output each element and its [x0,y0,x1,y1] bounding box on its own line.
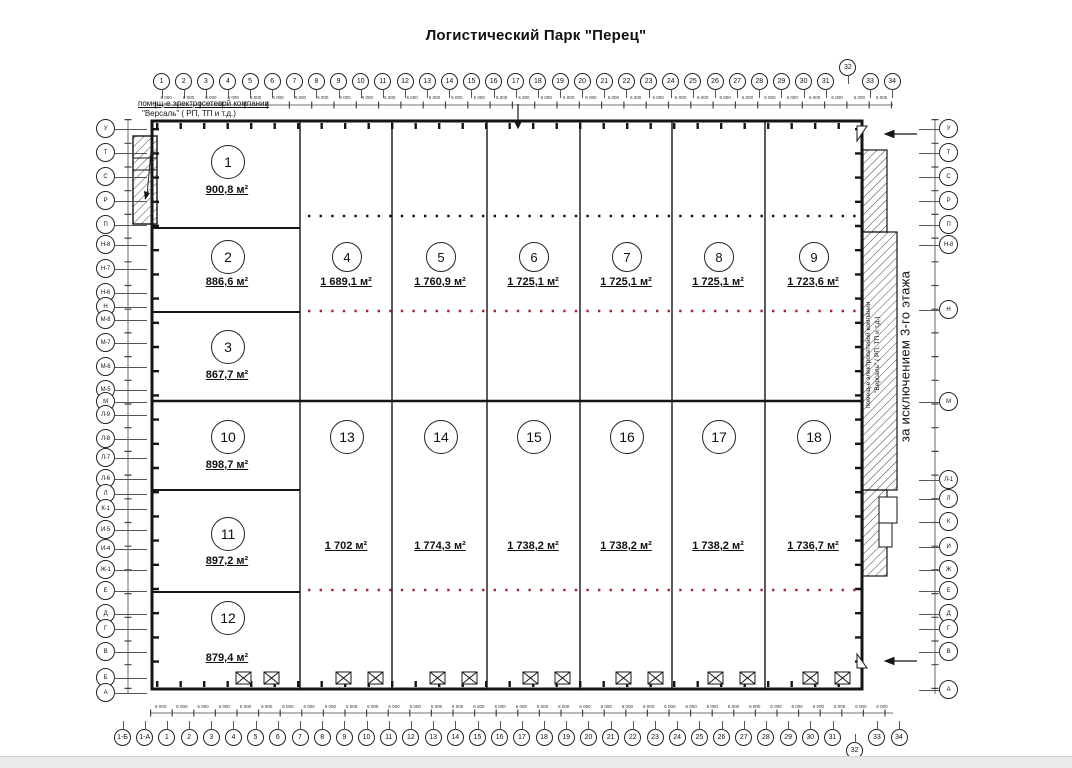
axis-label: 16 [491,729,508,746]
axis-label: Ж-1 [96,560,115,579]
axis-label: С [939,167,958,186]
electric-room-note-line1: помещ-е электросетевой компании [138,99,269,109]
axis-label: 15 [469,729,486,746]
axis-label: Н [939,300,958,319]
axis-label: М [939,392,958,411]
axis-label: 11 [374,73,391,90]
axis-label: 34 [891,729,908,746]
axis-label: 19 [552,73,569,90]
axis-label: А [96,683,115,702]
dimension-label: 6 000 [876,95,887,100]
entrance-arrows [514,104,917,665]
left-axis: УТСРПН-8Н-7Н-6НМ-8М-7М-6М-5МЛ-9Л-8Л-7Л-6… [96,0,113,768]
axis-label: Г [939,619,958,638]
axis-label: В [939,642,958,661]
unit-area-9: 1 723,6 м² [787,276,839,288]
dimension-label: 6 000 [516,704,527,709]
axis-label: 33 [868,729,885,746]
axis-label: 1-Б [114,729,131,746]
axis-label: 3 [203,729,220,746]
dimension-label: 6 000 [630,95,641,100]
axis-label: 1-А [136,729,153,746]
unit-area-17: 1 738,2 м² [692,540,744,552]
axis-label: Н-8 [939,235,958,254]
dimension-label: 6 000 [346,704,357,709]
axis-label: 7 [286,73,303,90]
axis-label: 34 [884,73,901,90]
dimension-label: 6 000 [855,704,866,709]
unit-number-1: 1 [211,145,245,179]
axis-label: 1 [153,73,170,90]
dimension-label: 6 000 [608,95,619,100]
electric-room-right-line2: "Версаль" ( РП, ТП и т.д.) [874,317,881,393]
axis-label: 25 [691,729,708,746]
axis-label: 10 [352,73,369,90]
axis-label: 5 [242,73,259,90]
dock-doors [236,672,850,684]
dimension-label: 6 000 [563,95,574,100]
axis-label: 30 [795,73,812,90]
axis-label: П [96,215,115,234]
dimension-label: 6 000 [474,95,485,100]
axis-label: 29 [773,73,790,90]
unit-area-15: 1 738,2 м² [507,540,559,552]
dimension-label: 6 000 [183,95,194,100]
axis-label: И-4 [96,539,115,558]
axis-label: Л-1 [939,470,958,489]
axis-label: 28 [751,73,768,90]
dimension-label: 6 000 [742,95,753,100]
axis-label: 22 [618,73,635,90]
bottom-axis: 1-Б1-А1234567891011121314151617181920212… [114,729,908,746]
dimension-label: 6 000 [664,704,675,709]
dimension-label: 6 000 [161,95,172,100]
axis-label: Л-9 [96,405,115,424]
drawing-canvas: { "title": "Логистический Парк \"Перец\"… [0,0,1072,768]
axis-label: 33 [862,73,879,90]
dimension-label: 6 000 [429,95,440,100]
axis-label: 20 [574,73,591,90]
unit-number-17: 17 [702,420,736,454]
axis-label: У [96,119,115,138]
dimension-label: 6 000 [579,704,590,709]
axis-label: Н-7 [96,259,115,278]
dimension-label: 6 000 [728,704,739,709]
dimension-label: 6 000 [410,704,421,709]
dimension-label: 6 000 [339,95,350,100]
dimension-label: 6 000 [558,704,569,709]
dimension-label: 6 000 [496,95,507,100]
dimension-label: 6 000 [749,704,760,709]
unit-number-5: 5 [426,242,456,272]
unit-area-10: 898,7 м² [206,459,248,471]
dimension-label: 6 000 [494,704,505,709]
column-ticks [156,126,858,684]
axis-label: 15 [463,73,480,90]
axis-label: 12 [397,73,414,90]
dimension-label: 6 000 [452,704,463,709]
axis-label: 14 [441,73,458,90]
axis-label: 6 [269,729,286,746]
axis-label: Л-7 [96,448,115,467]
unit-area-7: 1 725,1 м² [600,276,652,288]
unit-area-14: 1 774,3 м² [414,540,466,552]
top-dimensions: 6 0006 0006 0006 0006 0006 0006 0006 000… [155,95,893,100]
unit-number-14: 14 [424,420,458,454]
dimension-label: 6 000 [205,95,216,100]
axis-label: 16 [485,73,502,90]
dimension-label: 6 000 [585,95,596,100]
axis-label: К-1 [96,499,115,518]
dimension-label: 6 000 [197,704,208,709]
unit-number-10: 10 [211,420,245,454]
axis-label: 6 [264,73,281,90]
axis-label: Е [939,581,958,600]
axis-label: 9 [336,729,353,746]
axis-label: С [96,167,115,186]
axis-label: 4 [225,729,242,746]
axis-label: 7 [292,729,309,746]
axis-label: 31 [817,73,834,90]
unit-area-6: 1 725,1 м² [507,276,559,288]
axis-label: Т [939,143,958,162]
axis-label: 22 [624,729,641,746]
axis-label: Р [939,191,958,210]
axis-label: 24 [662,73,679,90]
unit-number-9: 9 [799,242,829,272]
dimension-label: 6 000 [770,704,781,709]
axis-label: К [939,512,958,531]
dimension-label: 6 000 [261,704,272,709]
dimension-label: 6 000 [317,95,328,100]
electric-room-note: помещ-е электросетевой компании "Версаль… [138,99,269,120]
dimension-label: 6 000 [537,704,548,709]
unit-number-6: 6 [519,242,549,272]
axis-label: 27 [729,73,746,90]
axis-label: 24 [669,729,686,746]
axis-label: 29 [780,729,797,746]
dimension-label: 6 000 [652,95,663,100]
unit-area-12: 879,4 м² [206,652,248,664]
dimension-label: 6 000 [707,704,718,709]
axis-label: 30 [802,729,819,746]
axis-label: 28 [757,729,774,746]
axis-label: 1 [158,729,175,746]
axis-label: П [939,215,958,234]
dimension-label: 6 000 [451,95,462,100]
axis-label: Т [96,143,115,162]
dimension-label: 6 000 [831,95,842,100]
dimension-label: 6 000 [407,95,418,100]
top-axis: 1234567891011121314151617181920212223242… [153,73,901,90]
dimension-label: 6 000 [764,95,775,100]
unit-area-18: 1 736,7 м² [787,540,839,552]
dimension-label: 6 000 [643,704,654,709]
axis-label: 21 [596,73,613,90]
unit-number-15: 15 [517,420,551,454]
axis-label: Л-8 [96,429,115,448]
axis-label: 10 [358,729,375,746]
axis-label: 13 [419,73,436,90]
axis-label: У [939,119,958,138]
unit-number-12: 12 [211,601,245,635]
axis-label: 2 [181,729,198,746]
axis-label: 25 [684,73,701,90]
axis-label: Е [96,581,115,600]
dimension-label: 6 000 [473,704,484,709]
axis-label: Ж [939,560,958,579]
dimension-label: 6 000 [362,95,373,100]
axis-label: М-7 [96,333,115,352]
dimension-label: 6 000 [622,704,633,709]
dimension-label: 6 000 [834,704,845,709]
axis-label: 18 [529,73,546,90]
right-axis: УТСРПН-8НМЛ-1ЛКИЖЕДГВА [939,0,956,768]
dimension-label: 6 000 [787,95,798,100]
unit-number-2: 2 [211,240,245,274]
axis-label: 21 [602,729,619,746]
floor-exception-note: за исключением 3-го этажа [898,255,913,459]
axis-label: Р [96,191,115,210]
bottom-gray-bar [0,756,1072,768]
dimension-label: 6 000 [876,704,887,709]
dimension-label: 6 000 [176,704,187,709]
dimension-label: 6 000 [384,95,395,100]
unit-area-3: 867,7 м² [206,369,248,381]
axis-label: М-6 [96,357,115,376]
axis-label: И [939,537,958,556]
dimension-label: 6 000 [250,95,261,100]
axis-label: 20 [580,729,597,746]
axis-label: 18 [536,729,553,746]
unit-area-8: 1 725,1 м² [692,276,744,288]
axis-label: 3 [197,73,214,90]
dimension-label: 6 000 [541,95,552,100]
axis-label: 8 [314,729,331,746]
dimension-label: 6 000 [228,95,239,100]
unit-number-7: 7 [612,242,642,272]
dimension-label: 6 000 [219,704,230,709]
axis-label: 12 [402,729,419,746]
unit-area-11: 897,2 м² [206,555,248,567]
building-walls [152,121,862,689]
unit-number-11: 11 [211,517,245,551]
axis-label: 31 [824,729,841,746]
axis-label: А [939,680,958,699]
unit-area-5: 1 760,9 м² [414,276,466,288]
unit-area-1: 900,8 м² [206,184,248,196]
dimension-label: 6 000 [295,95,306,100]
axis-label: М-8 [96,310,115,329]
dimension-label: 6 000 [813,704,824,709]
electric-room-note-line2: "Версаль" ( РП, ТП и т.д.) [138,109,269,119]
dimension-label: 6 000 [367,704,378,709]
unit-area-16: 1 738,2 м² [600,540,652,552]
unit-number-3: 3 [211,330,245,364]
axis-label: 8 [308,73,325,90]
axis-label: В [96,642,115,661]
dimension-label: 6 000 [809,95,820,100]
axis-label: 4 [219,73,236,90]
unit-number-4: 4 [332,242,362,272]
unit-area-4: 1 689,1 м² [320,276,372,288]
dimension-label: 6 000 [388,704,399,709]
axis-label: 5 [247,729,264,746]
page-title: Логистический Парк "Перец" [0,27,1072,44]
axis-label: 23 [647,729,664,746]
dimension-label: 6 000 [792,704,803,709]
axis-label: 17 [507,73,524,90]
dimension-label: 6 000 [272,95,283,100]
unit-number-18: 18 [797,420,831,454]
dimension-label: 6 000 [431,704,442,709]
axis-label: И-5 [96,520,115,539]
electric-room-right-line1: помещ-е электросетевой компании [865,302,872,408]
axis-label: 26 [713,729,730,746]
dimension-label: 6 000 [518,95,529,100]
axis-label: 23 [640,73,657,90]
axis-label: 26 [707,73,724,90]
unit-number-8: 8 [704,242,734,272]
axis-label: 14 [447,729,464,746]
dimension-label: 6 000 [697,95,708,100]
dimension-label: 6 000 [325,704,336,709]
unit-area-2: 886,6 м² [206,276,248,288]
dimension-lines [128,105,935,713]
axis-label: 2 [175,73,192,90]
column-grid-dots [308,216,856,590]
dimension-label: 6 000 [675,95,686,100]
axis-label: 32 [839,59,856,76]
unit-area-13: 1 702 м² [325,540,367,552]
dimension-label: 6 000 [601,704,612,709]
axis-label: 27 [735,729,752,746]
dimension-label: 6 000 [854,95,865,100]
dimension-label: 6 000 [240,704,251,709]
dimension-label: 6 000 [685,704,696,709]
dimension-label: 6 000 [282,704,293,709]
unit-number-13: 13 [330,420,364,454]
axis-label: 11 [380,729,397,746]
dimension-label: 6 000 [720,95,731,100]
axis-label: 17 [513,729,530,746]
axis-label: Г [96,619,115,638]
dimension-label: 6 000 [155,704,166,709]
dimension-label: 6 000 [304,704,315,709]
electric-room-right-label: помещ-е электросетевой компании "Версаль… [865,275,883,435]
bottom-dimensions: 6 0006 0006 0006 0006 0006 0006 0006 000… [150,704,893,709]
unit-number-16: 16 [610,420,644,454]
axis-label: Л [939,489,958,508]
axis-label: 19 [558,729,575,746]
axis-label: Н-8 [96,235,115,254]
axis-label: 9 [330,73,347,90]
axis-label: 13 [425,729,442,746]
